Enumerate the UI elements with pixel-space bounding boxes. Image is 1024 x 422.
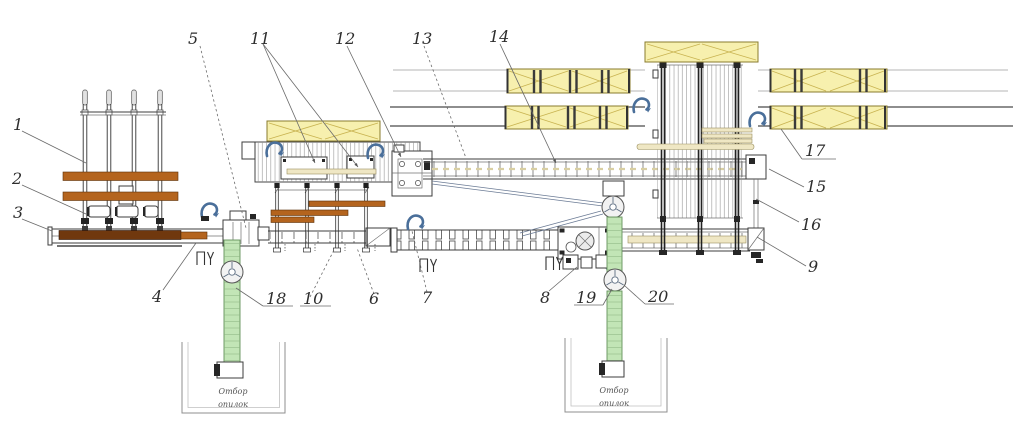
console-symbol — [197, 252, 214, 265]
hook-icon — [750, 113, 767, 127]
sorted-board — [309, 201, 385, 207]
hook-icon — [202, 204, 219, 218]
console-symbol — [420, 259, 437, 272]
saw-blade-icon — [566, 242, 576, 252]
fan-wheel-icon — [604, 269, 626, 291]
pit-label-right-line2: опилок — [599, 399, 629, 408]
callout-15: 15 — [806, 177, 826, 196]
lumber-log — [59, 231, 181, 240]
fan-wheel-icon — [221, 261, 243, 283]
pit-label-right-line1: Отбор — [600, 386, 629, 395]
board-on-conveyor — [628, 236, 746, 243]
lumber-beam — [63, 172, 178, 181]
lumber-stack — [63, 90, 178, 232]
callout-14: 14 — [489, 27, 509, 46]
cross-conveyor-10 — [268, 228, 392, 251]
waste-conveyor-7 — [391, 228, 558, 252]
stacker-structure — [637, 42, 758, 255]
callout-17: 17 — [805, 141, 826, 160]
callout-20: 20 — [647, 287, 668, 306]
sorted-board — [271, 217, 314, 223]
callout-5: 5 — [188, 29, 198, 48]
callout-2: 2 — [11, 169, 22, 188]
waste-belt-conveyor-right — [599, 181, 626, 377]
callout-3: 3 — [13, 203, 23, 222]
infeed-deck-conveyor — [48, 227, 232, 246]
callout-11: 11 — [250, 29, 270, 48]
callout-8: 8 — [540, 288, 550, 307]
callout-19: 19 — [576, 288, 596, 307]
hook-icon — [634, 99, 651, 113]
lumber-beam — [63, 192, 178, 201]
hook-icon — [408, 216, 425, 230]
callout-9: 9 — [808, 257, 818, 276]
callout-13: 13 — [412, 29, 432, 48]
control-console-symbols — [197, 252, 563, 272]
outfeed-conveyor-9 — [612, 228, 764, 263]
fan-wheel-icon — [602, 196, 624, 218]
callout-18: 18 — [266, 289, 286, 308]
callout-12: 12 — [335, 29, 355, 48]
callout-1: 1 — [13, 115, 23, 134]
callout-4: 4 — [151, 287, 162, 306]
diagram-canvas: Отбор опилок Отбор опилок — [0, 0, 1024, 422]
callout-6: 6 — [369, 289, 379, 308]
saw-unit — [558, 227, 612, 269]
callout-16: 16 — [801, 215, 821, 234]
pit-label-left-line1: Отбор — [219, 387, 248, 396]
sorted-board — [271, 210, 348, 216]
callout-10: 10 — [303, 289, 323, 308]
waste-belt-conveyor-left — [214, 240, 243, 378]
lumber-board — [181, 232, 207, 239]
pit-label-left-line2: опилок — [218, 400, 248, 409]
callout-7: 7 — [422, 288, 433, 307]
